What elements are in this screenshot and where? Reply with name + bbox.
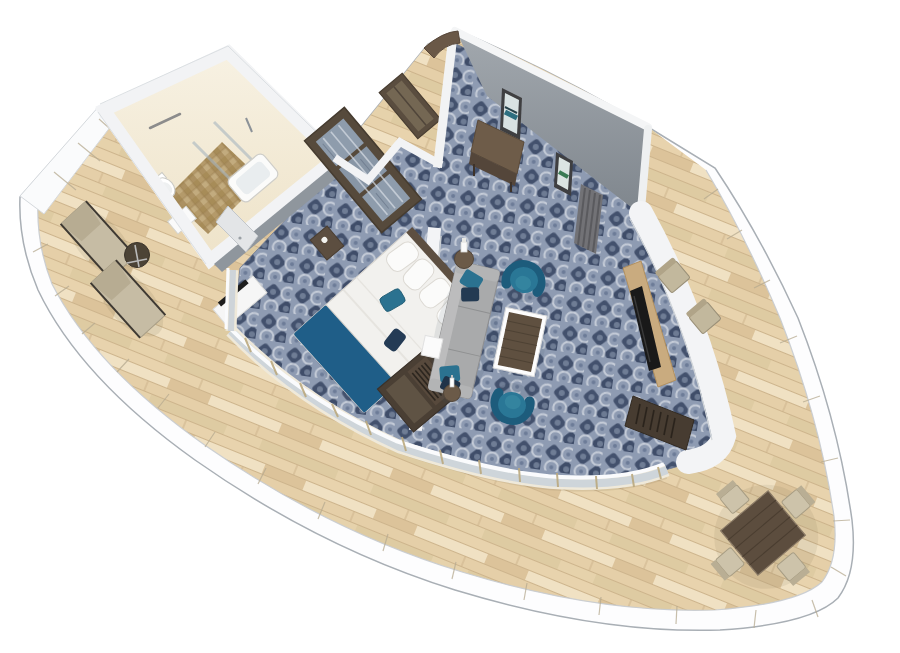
west-window-top [226,268,228,329]
round-drink-table [125,243,150,268]
west-window-glass [231,270,233,331]
floorplan-stage [0,0,900,653]
floorplan-canvas [0,0,900,653]
white-cube-table [421,335,443,358]
door-handle [238,236,241,239]
sofa-pillow-navy-1 [461,287,479,301]
